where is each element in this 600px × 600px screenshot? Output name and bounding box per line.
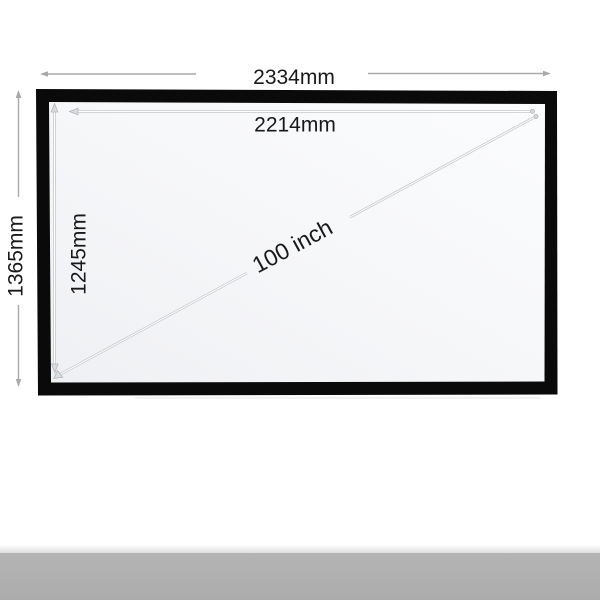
svg-text:2214mm: 2214mm [254, 114, 336, 137]
svg-text:1365mm: 1365mm [5, 215, 28, 297]
svg-text:2334mm: 2334mm [253, 66, 335, 89]
svg-text:1245mm: 1245mm [68, 213, 91, 295]
